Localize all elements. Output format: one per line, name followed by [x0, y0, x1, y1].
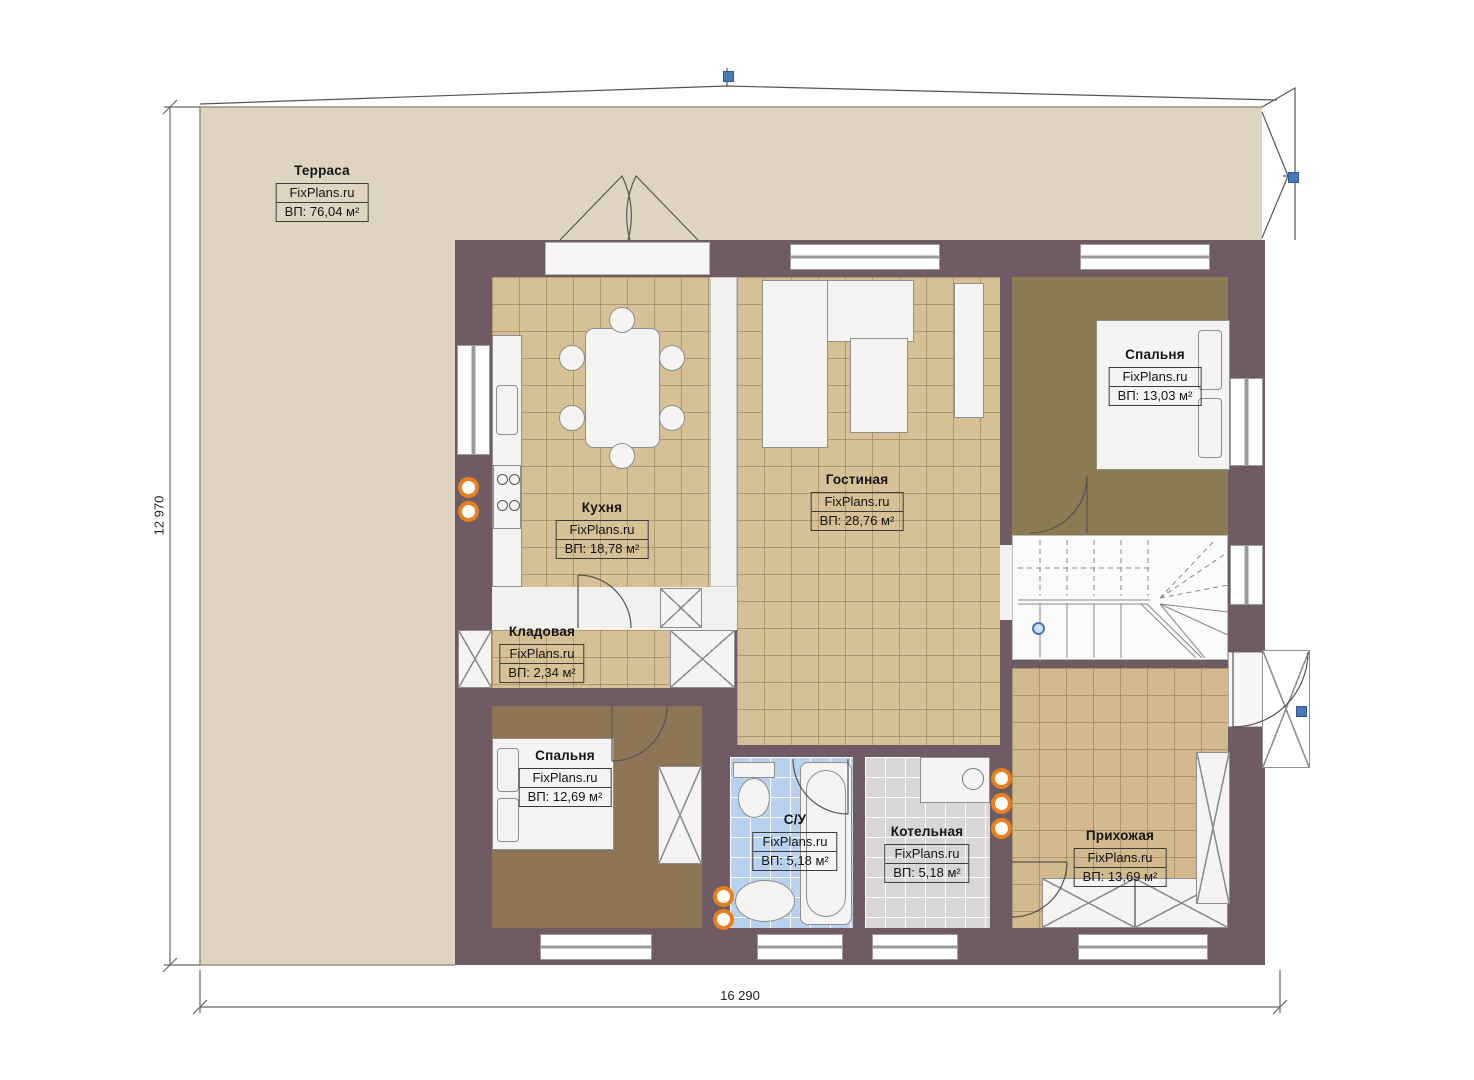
pillow	[497, 748, 519, 792]
brand-label: FixPlans.ru	[500, 645, 583, 664]
room-area: ВП: 18,78 м²	[557, 540, 648, 558]
boiler-dial-icon	[962, 768, 984, 790]
chair	[609, 443, 635, 469]
chair	[659, 405, 685, 431]
window-bedroom-right	[1230, 378, 1263, 466]
room-label-bedroom-bottom: Спальня FixPlans.ru ВП: 12,69 м²	[519, 748, 612, 807]
window-boiler	[872, 934, 958, 960]
storage-wardrobe	[670, 630, 735, 688]
room-name: Гостиная	[811, 472, 904, 489]
selection-handle[interactable]	[723, 71, 734, 82]
room-label-terrace: Терраса FixPlans.ru ВП: 76,04 м²	[276, 163, 369, 222]
room-name: Прихожая	[1074, 828, 1167, 845]
window-stairs-right	[1230, 545, 1263, 605]
chair	[659, 345, 685, 371]
socket-icon	[458, 477, 479, 498]
corridor-cabinet	[660, 588, 702, 628]
wardrobe	[658, 766, 702, 864]
room-name: Котельная	[884, 824, 969, 841]
room-area: ВП: 12,69 м²	[520, 788, 611, 806]
window-hallway	[1078, 934, 1208, 960]
sofa-chaise	[762, 280, 828, 448]
window-bedroom-top	[1080, 244, 1210, 270]
selection-handle[interactable]	[1296, 706, 1307, 717]
room-name: Кладовая	[499, 624, 584, 641]
selection-handle[interactable]	[1288, 172, 1299, 183]
room-area: ВП: 13,69 м²	[1075, 868, 1166, 886]
room-area: ВП: 5,18 м²	[753, 852, 836, 870]
chair	[559, 405, 585, 431]
room-label-bedroom-top: Спальня FixPlans.ru ВП: 13,03 м²	[1109, 347, 1202, 406]
staircase	[1012, 535, 1228, 660]
coffee-table	[850, 338, 908, 433]
brand-label: FixPlans.ru	[885, 845, 968, 864]
partition-kitchen-living	[710, 277, 737, 587]
floor-plan-canvas: Терраса FixPlans.ru ВП: 76,04 м² Кухня F…	[0, 0, 1474, 1080]
socket-icon	[713, 886, 734, 907]
kitchen-counter	[492, 335, 522, 587]
bathroom-sink	[735, 880, 795, 922]
room-name: Терраса	[276, 163, 369, 180]
chair	[559, 345, 585, 371]
room-label-hallway: Прихожая FixPlans.ru ВП: 13,69 м²	[1074, 828, 1167, 887]
stove-burner-icon	[509, 474, 520, 485]
dining-table	[585, 328, 660, 448]
brand-label: FixPlans.ru	[1075, 849, 1166, 868]
pillow	[1198, 330, 1222, 390]
tv-bench	[954, 283, 984, 418]
window-living	[790, 244, 940, 270]
terrace-floor-top	[455, 107, 1262, 240]
brand-label: FixPlans.ru	[753, 833, 836, 852]
room-area: ВП: 28,76 м²	[812, 512, 903, 530]
door-opening-living-stairs	[1000, 545, 1012, 620]
hall-closet	[1196, 752, 1230, 904]
socket-icon	[458, 501, 479, 522]
room-area: ВП: 13,03 м²	[1110, 387, 1201, 405]
window-kitchen-left	[457, 345, 490, 455]
pillow	[1198, 398, 1222, 458]
socket-icon	[991, 818, 1012, 839]
room-label-kitchen: Кухня FixPlans.ru ВП: 18,78 м²	[556, 500, 649, 559]
brand-label: FixPlans.ru	[277, 184, 368, 203]
stove-burner-icon	[497, 474, 508, 485]
dimension-width: 16 290	[700, 988, 780, 1003]
brand-label: FixPlans.ru	[1110, 368, 1201, 387]
stove-burner-icon	[497, 500, 508, 511]
toilet-tank	[733, 762, 775, 778]
terrace-floor	[200, 107, 455, 965]
brand-label: FixPlans.ru	[812, 493, 903, 512]
room-area: ВП: 76,04 м²	[277, 203, 368, 221]
storage-shelf	[458, 630, 492, 688]
socket-icon	[713, 909, 734, 930]
selection-handle[interactable]	[1032, 622, 1045, 635]
dimension-height: 12 970	[152, 485, 167, 547]
room-label-storage: Кладовая FixPlans.ru ВП: 2,34 м²	[499, 624, 584, 683]
room-area: ВП: 5,18 м²	[885, 864, 968, 882]
room-area: ВП: 2,34 м²	[500, 664, 583, 682]
pillow	[497, 798, 519, 842]
room-name: Спальня	[519, 748, 612, 765]
window-bathroom	[757, 934, 843, 960]
room-name: Кухня	[556, 500, 649, 517]
chair	[609, 307, 635, 333]
room-label-boiler: Котельная FixPlans.ru ВП: 5,18 м²	[884, 824, 969, 883]
room-name: С/У	[752, 812, 837, 829]
room-name: Спальня	[1109, 347, 1202, 364]
room-label-bathroom: С/У FixPlans.ru ВП: 5,18 м²	[752, 812, 837, 871]
stove-burner-icon	[509, 500, 520, 511]
socket-icon	[991, 768, 1012, 789]
brand-label: FixPlans.ru	[557, 521, 648, 540]
socket-icon	[991, 793, 1012, 814]
brand-label: FixPlans.ru	[520, 769, 611, 788]
entrance-door-opening	[1228, 652, 1265, 727]
window-bedroom-bottom	[540, 934, 652, 960]
room-label-living: Гостиная FixPlans.ru ВП: 28,76 м²	[811, 472, 904, 531]
kitchen-sink	[496, 385, 518, 435]
french-door-kitchen-terrace	[545, 242, 710, 275]
